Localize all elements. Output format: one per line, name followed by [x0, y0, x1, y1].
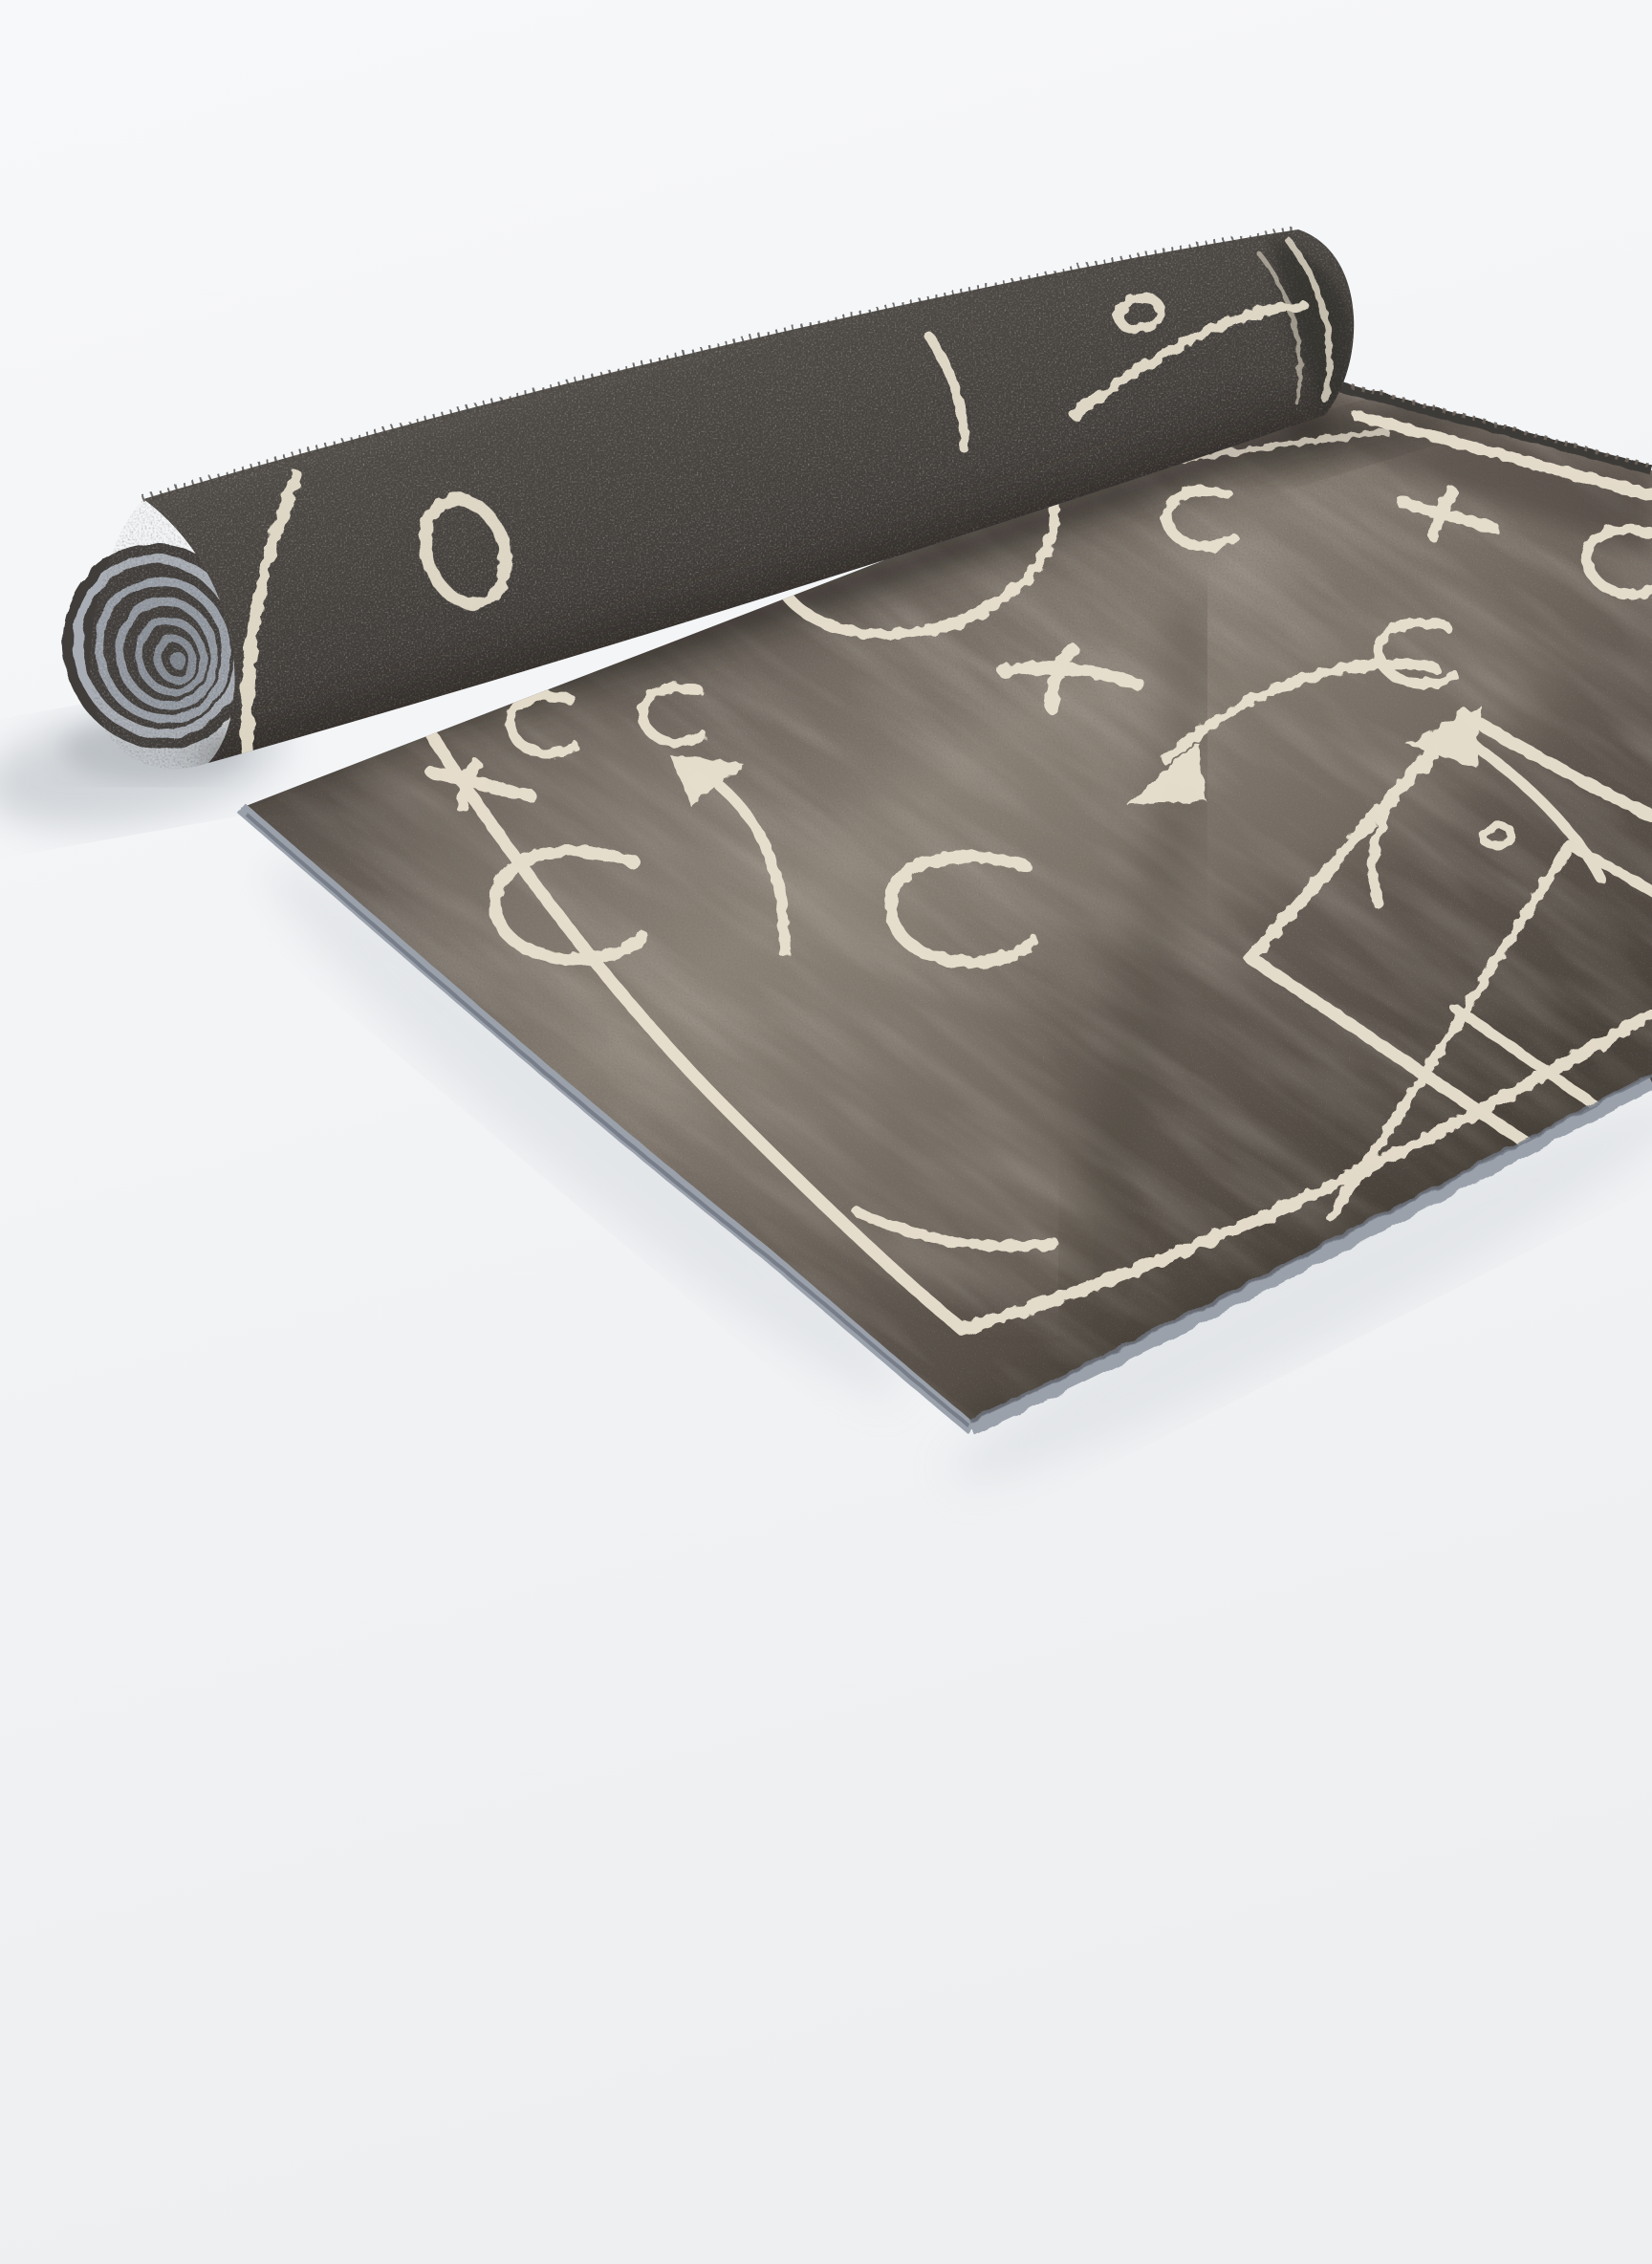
product-photo-stage: [0, 0, 1652, 2264]
rug-photo: [0, 0, 1652, 2264]
